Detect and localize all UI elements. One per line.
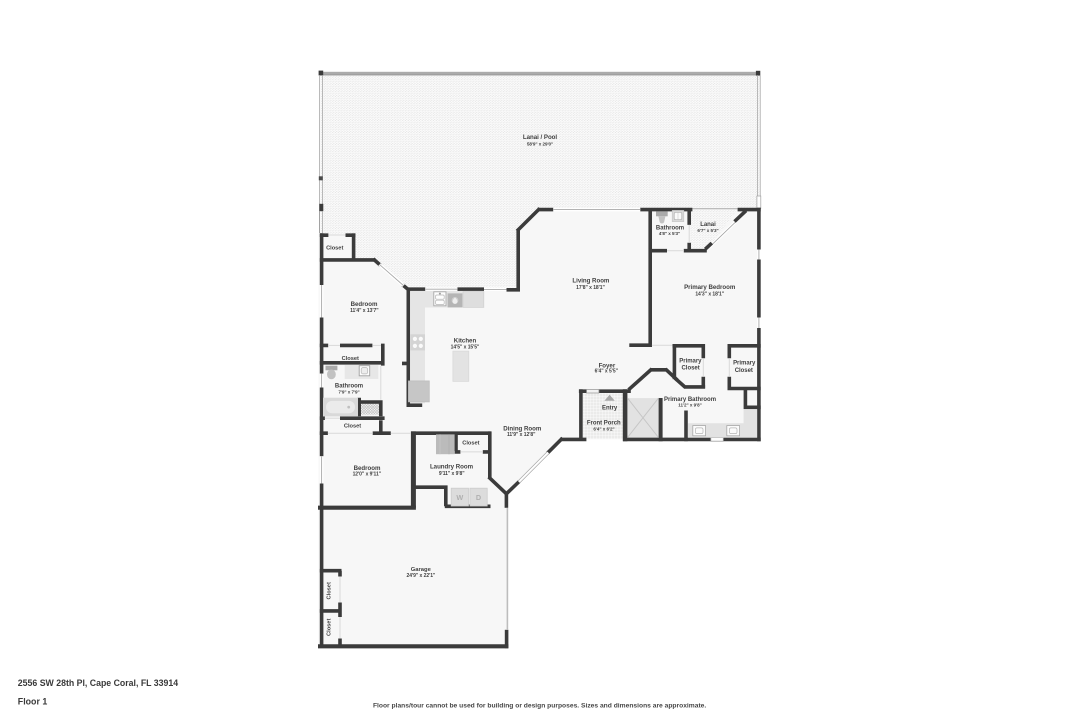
svg-text:Primary Bedroom: Primary Bedroom — [684, 284, 736, 291]
svg-text:Primary: Primary — [733, 361, 756, 367]
svg-text:11'9" x 12'8": 11'9" x 12'8" — [507, 432, 536, 438]
svg-text:14'5" x 15'5": 14'5" x 15'5" — [451, 345, 480, 351]
svg-text:Closet: Closet — [327, 619, 333, 636]
svg-text:Closet: Closet — [462, 441, 479, 447]
svg-text:24'9" x 22'1": 24'9" x 22'1" — [407, 573, 436, 579]
svg-text:Kitchen: Kitchen — [454, 337, 477, 344]
svg-text:Laundry Room: Laundry Room — [430, 463, 474, 470]
svg-text:17'8" x 18'1": 17'8" x 18'1" — [576, 285, 605, 291]
svg-text:W: W — [456, 493, 463, 502]
svg-text:7'9" x 7'9": 7'9" x 7'9" — [338, 390, 359, 395]
svg-text:6'7" x 5'3": 6'7" x 5'3" — [697, 228, 718, 233]
svg-text:9'11" x 9'8": 9'11" x 9'8" — [439, 471, 465, 477]
svg-text:6'4" x 6'2": 6'4" x 6'2" — [593, 427, 614, 432]
svg-text:D: D — [476, 493, 481, 502]
svg-text:12'0" x 9'11": 12'0" x 9'11" — [353, 471, 382, 477]
svg-text:6'4" x 5'5": 6'4" x 5'5" — [595, 369, 619, 375]
svg-text:Floor 1: Floor 1 — [18, 696, 48, 706]
svg-text:Closet: Closet — [326, 245, 343, 251]
svg-text:Primary: Primary — [679, 358, 702, 364]
svg-text:2556 SW 28th Pl, Cape Coral, F: 2556 SW 28th Pl, Cape Coral, FL 33914 — [18, 678, 178, 688]
svg-text:Living Room: Living Room — [572, 277, 610, 284]
svg-text:Closet: Closet — [735, 368, 753, 374]
svg-text:Closet: Closet — [344, 423, 361, 429]
svg-text:11'2" x 9'8": 11'2" x 9'8" — [678, 403, 702, 408]
svg-text:Floor plans/tour cannot be use: Floor plans/tour cannot be used for buil… — [373, 702, 706, 709]
svg-text:58'9" x 29'0": 58'9" x 29'0" — [527, 141, 553, 146]
svg-text:Lanai / Pool: Lanai / Pool — [523, 134, 558, 141]
svg-text:Closet: Closet — [342, 356, 359, 362]
svg-text:11'4" x 13'7": 11'4" x 13'7" — [350, 308, 379, 314]
svg-text:Closet: Closet — [327, 582, 333, 599]
svg-text:Entry: Entry — [602, 406, 618, 412]
svg-text:4'8" x 5'3": 4'8" x 5'3" — [659, 231, 680, 236]
svg-text:14'3" x 18'1": 14'3" x 18'1" — [695, 292, 724, 298]
svg-text:Closet: Closet — [681, 366, 699, 372]
